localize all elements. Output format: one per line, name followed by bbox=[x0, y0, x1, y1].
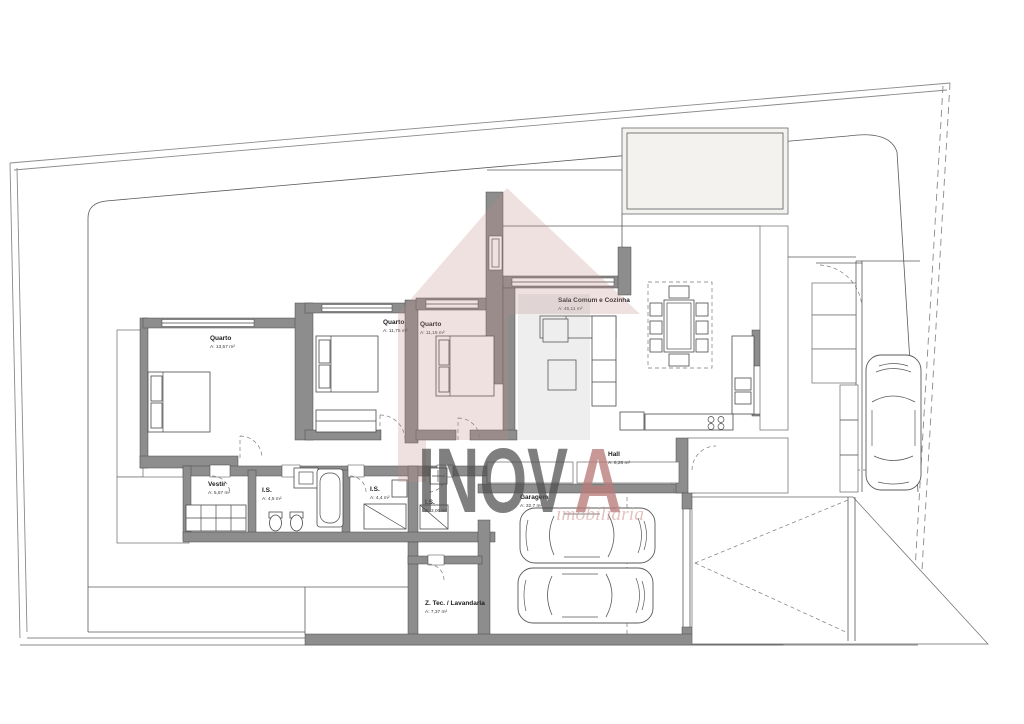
room-label-vestir: Vestir A: 5,67 m² bbox=[208, 481, 231, 496]
car-driveway bbox=[866, 355, 921, 490]
svg-text:A: 7,37 m²: A: 7,37 m² bbox=[425, 609, 448, 615]
entry-steps bbox=[812, 283, 856, 383]
garage-apron bbox=[692, 497, 988, 644]
watermark-body-right bbox=[518, 294, 590, 440]
window-bedroom1 bbox=[162, 320, 254, 327]
dining-furniture bbox=[648, 282, 712, 368]
fridge bbox=[620, 412, 644, 430]
svg-text:Quarto: Quarto bbox=[210, 335, 231, 342]
car-garage-2 bbox=[518, 568, 653, 623]
bathtub bbox=[317, 469, 343, 527]
sink bbox=[294, 468, 318, 488]
bed-double bbox=[316, 336, 378, 392]
svg-text:I.S.: I.S. bbox=[262, 487, 272, 494]
svg-text:A: 4,5 m²: A: 4,5 m² bbox=[262, 496, 282, 502]
svg-text:A: 4,4 m²: A: 4,4 m² bbox=[370, 495, 390, 501]
svg-text:Z. Tec. / Lavandaria: Z. Tec. / Lavandaria bbox=[425, 600, 485, 607]
planter bbox=[840, 385, 858, 492]
dresser bbox=[316, 410, 376, 432]
sink bbox=[392, 480, 407, 497]
room-label-quarto-1: Quarto A: 13,57 m² bbox=[210, 335, 235, 350]
bedroom1-furniture bbox=[148, 372, 210, 432]
floor-plan-canvas: Quarto A: 13,57 m² Quarto A: 11,75 m² Qu… bbox=[0, 0, 1024, 724]
bed-double bbox=[148, 372, 210, 432]
bidet bbox=[290, 512, 303, 531]
vestir-furniture bbox=[186, 505, 246, 531]
svg-text:I.S.: I.S. bbox=[370, 486, 380, 493]
svg-text:Vestir: Vestir bbox=[208, 481, 226, 488]
bedroom2-furniture bbox=[316, 336, 378, 432]
room-label-lavandaria: Z. Tec. / Lavandaria A: 7,37 m² bbox=[425, 600, 485, 615]
watermark-subtitle: imobiliária bbox=[556, 504, 644, 525]
watermark-brand-main: INOV bbox=[418, 430, 568, 532]
toilet bbox=[269, 512, 282, 531]
shower bbox=[364, 504, 406, 529]
kitchen-sink bbox=[735, 378, 751, 390]
room-label-is-1: I.S. A: 4,5 m² bbox=[262, 487, 282, 502]
side-terraces bbox=[117, 330, 189, 543]
room-label-is-2: I.S. A: 4,4 m² bbox=[370, 486, 390, 501]
dining-table bbox=[664, 300, 694, 352]
svg-text:A: 5,67 m²: A: 5,67 m² bbox=[208, 490, 231, 496]
floor-plan-page: Quarto A: 13,57 m² Quarto A: 11,75 m² Qu… bbox=[0, 0, 1024, 724]
watermark-body-left bbox=[398, 314, 508, 440]
window-bedroom2 bbox=[322, 305, 392, 312]
garage-door bbox=[683, 509, 690, 627]
svg-text:A: 13,57 m²: A: 13,57 m² bbox=[210, 344, 235, 350]
